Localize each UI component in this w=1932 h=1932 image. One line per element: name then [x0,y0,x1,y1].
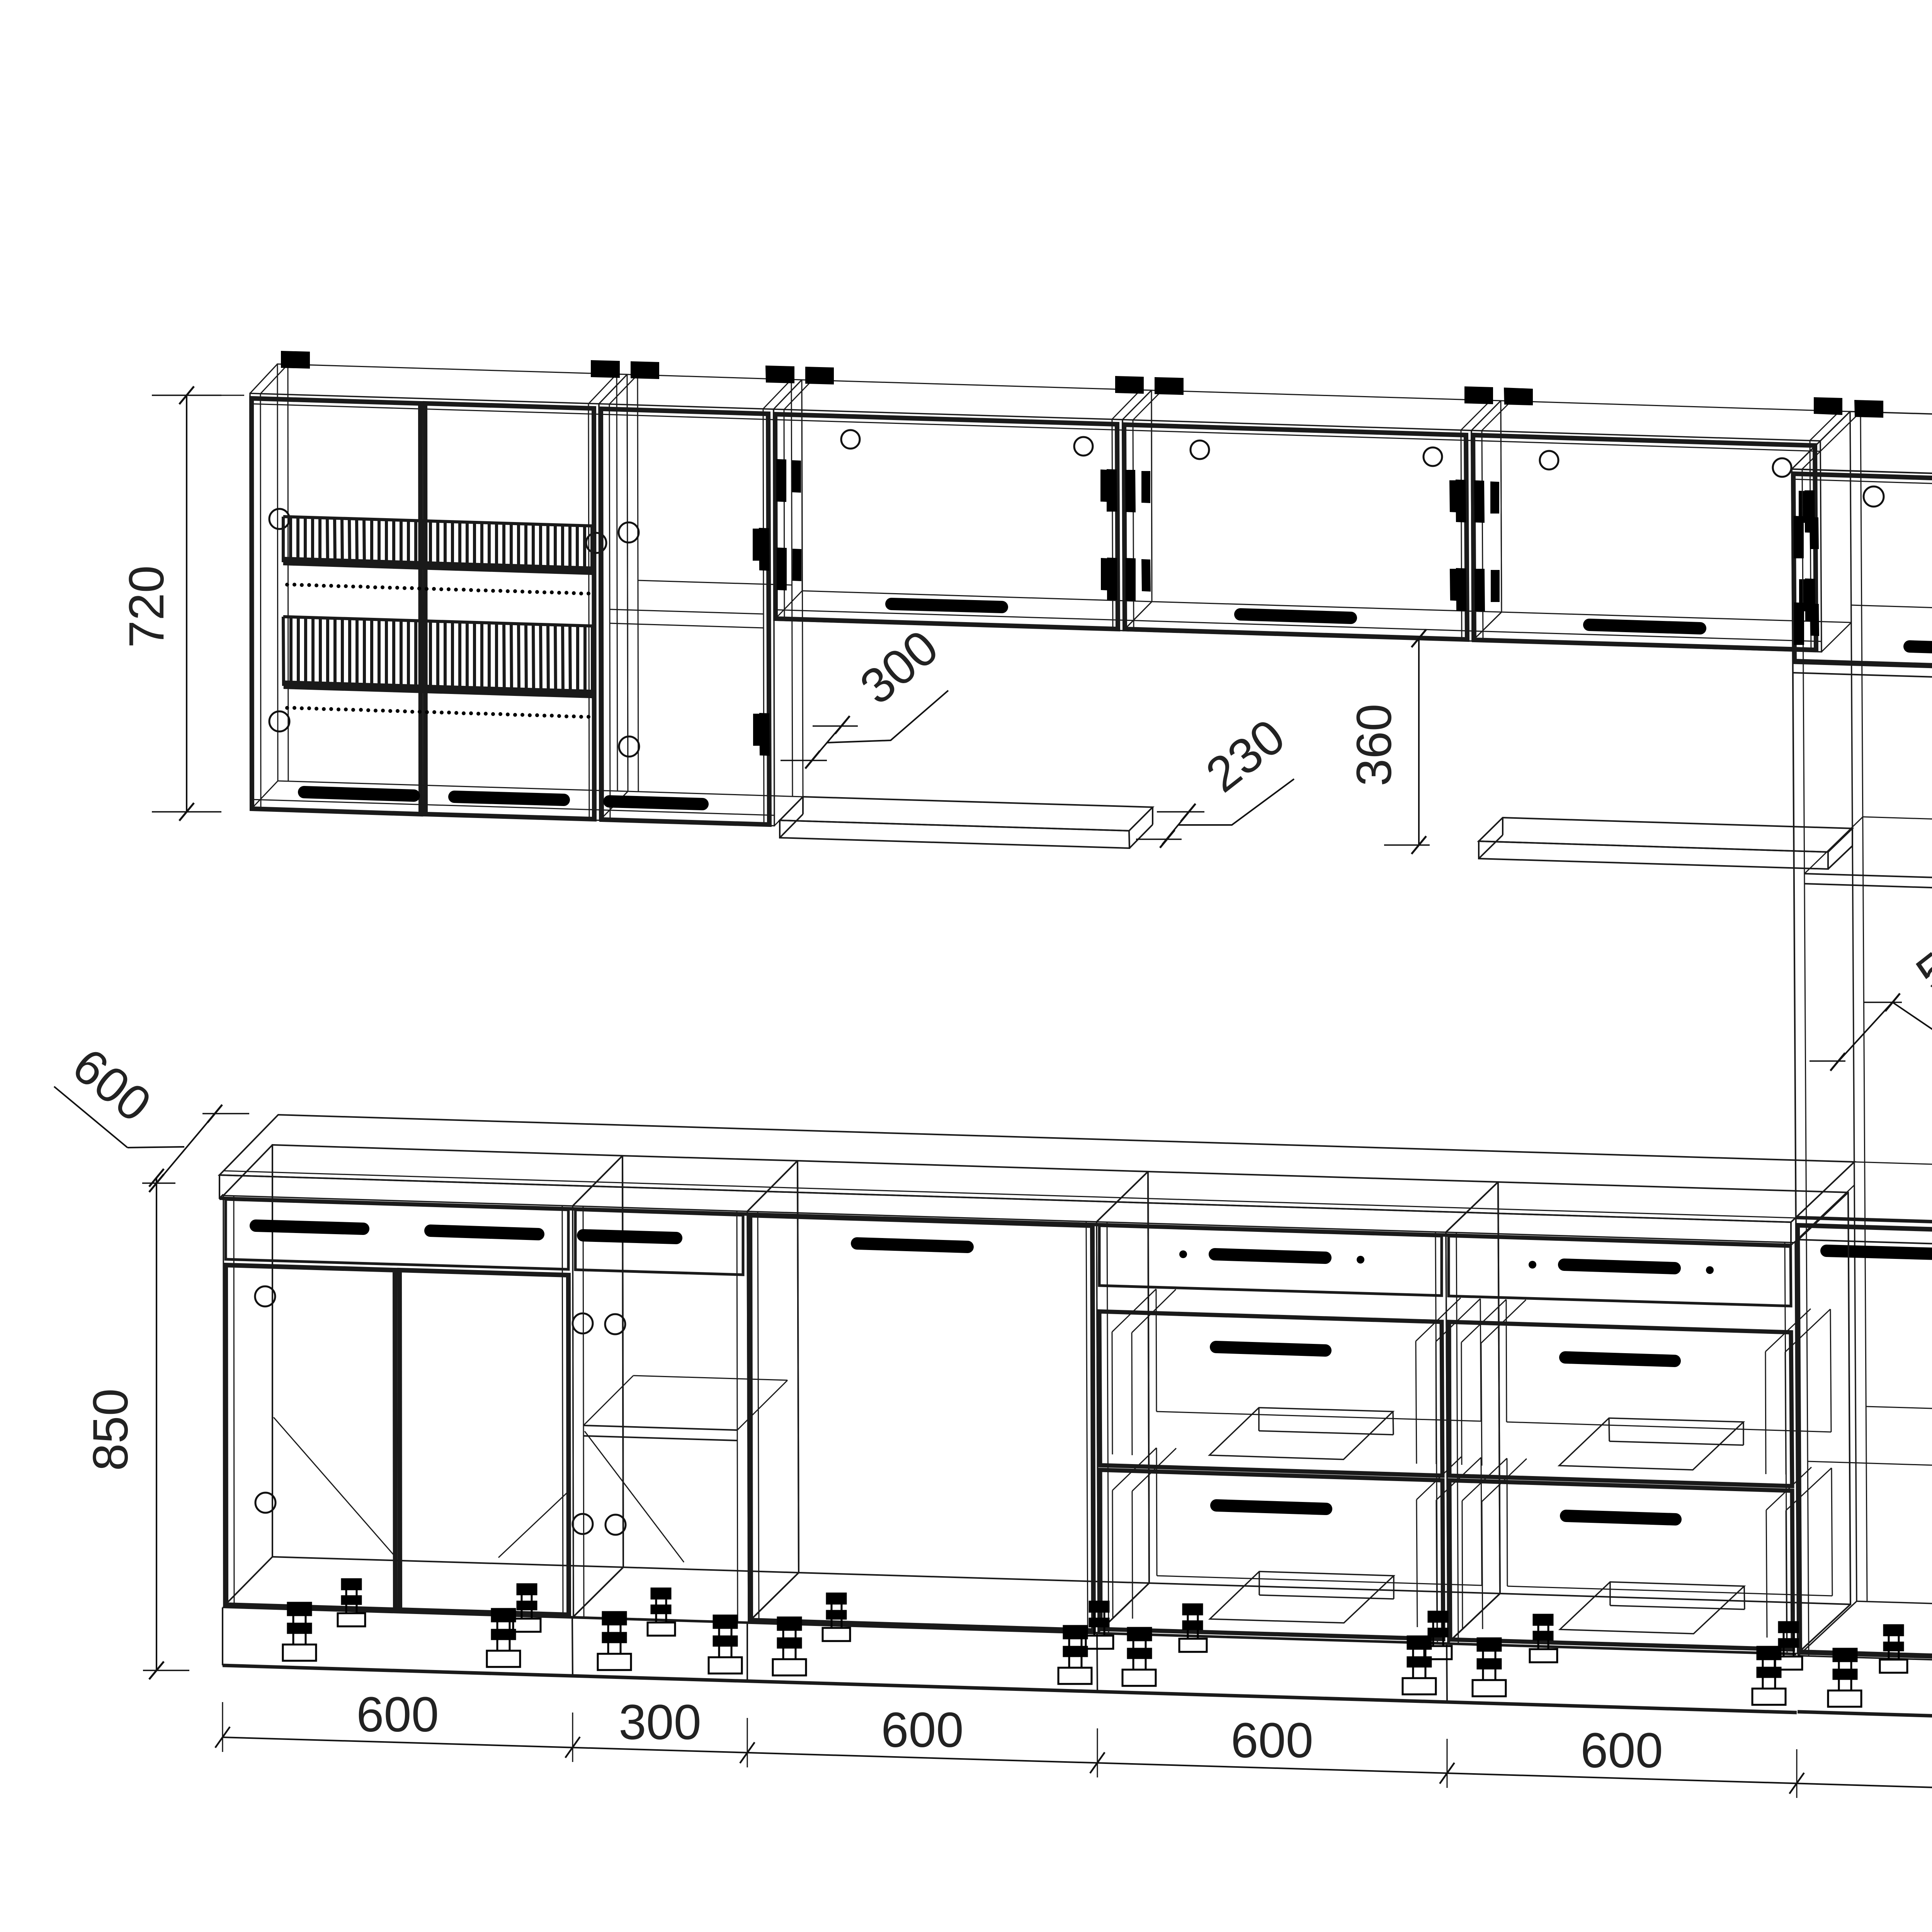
svg-text:300: 300 [619,1695,701,1750]
svg-text:600: 600 [356,1687,439,1742]
svg-text:850: 850 [83,1388,138,1471]
svg-text:600: 600 [1580,1723,1663,1778]
svg-text:600: 600 [881,1702,964,1758]
svg-text:360: 360 [1347,704,1402,786]
svg-text:720: 720 [119,565,174,648]
svg-text:600: 600 [1930,1733,1932,1789]
svg-text:600: 600 [1231,1713,1313,1768]
